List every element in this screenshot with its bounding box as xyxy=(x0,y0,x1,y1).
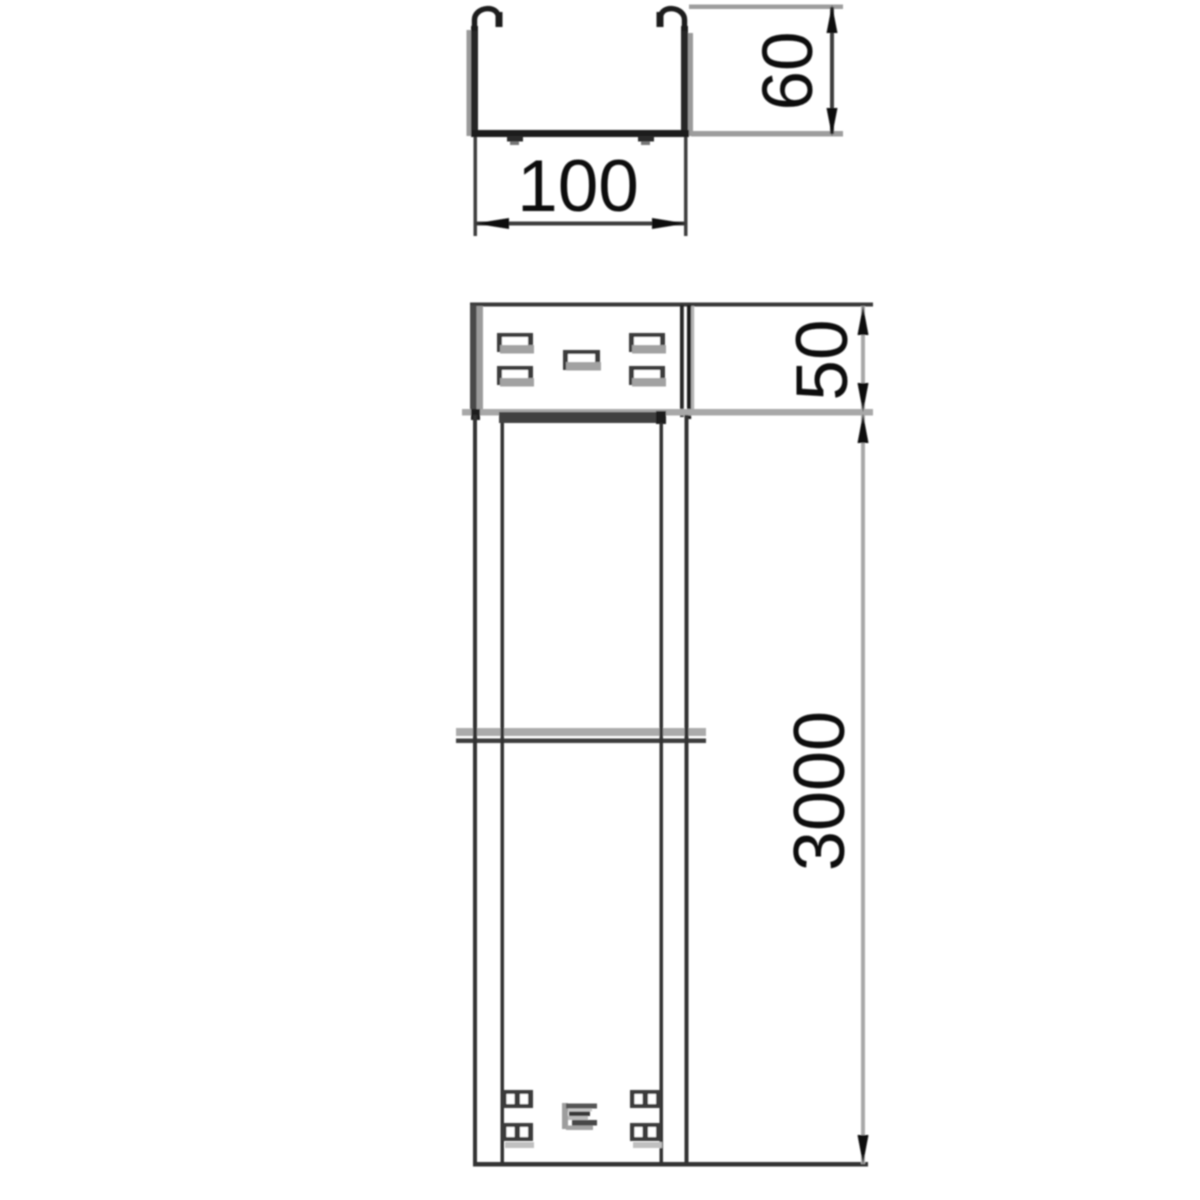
svg-text:60: 60 xyxy=(749,32,828,111)
svg-text:100: 100 xyxy=(517,146,639,227)
svg-text:50: 50 xyxy=(782,319,863,400)
svg-text:3000: 3000 xyxy=(780,711,860,871)
